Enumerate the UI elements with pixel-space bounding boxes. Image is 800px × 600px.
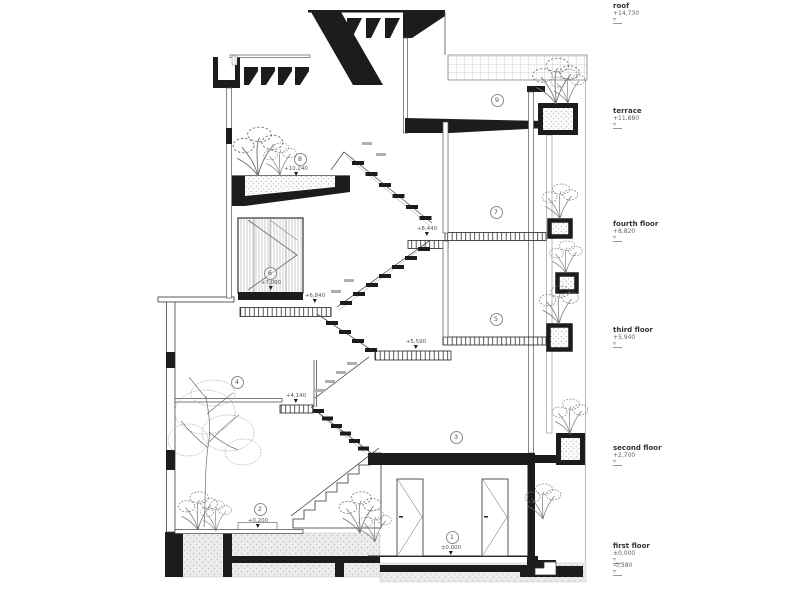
floor-label-third-floor: third floor +5,940 ▿ (613, 326, 693, 348)
landing-6840 (240, 308, 331, 317)
second-floor-slab (368, 453, 529, 465)
level-text: ±0.000 (441, 545, 461, 551)
bush (179, 492, 218, 530)
room-number-5: 5 (490, 313, 503, 326)
floor-elevation: ±0,000 (613, 550, 693, 557)
planter-4f (550, 221, 571, 237)
terrace-roof-slab (405, 118, 545, 133)
floor-elevation: -0,380 (613, 562, 693, 569)
level-annotation-5590: +5,590 (406, 339, 426, 349)
door (482, 479, 508, 556)
level-marker-icon (313, 299, 317, 303)
fourth-floor-slab (445, 233, 546, 241)
third-floor-slab (443, 337, 546, 345)
planter-terrace (541, 106, 576, 133)
room8-terrace-planter (232, 176, 350, 207)
level-text: +8,440 (417, 226, 437, 232)
floor-label-roof: roof +14,730 ▿ (613, 2, 693, 24)
floor-name: second floor (613, 444, 693, 452)
room-number-1: 1 (446, 531, 459, 544)
room-number-6: 6 (264, 267, 277, 280)
floor-elevation: +8,820 (613, 228, 693, 235)
planter-3f (549, 326, 571, 350)
floor-name: roof (613, 2, 693, 10)
room2-floor-line (175, 530, 303, 534)
level-text: +6,840 (305, 293, 325, 299)
level-text: +7,090 (261, 280, 281, 286)
floor-name: terrace (613, 107, 693, 115)
staircase (291, 142, 432, 528)
level-marker-icon: ▿ (613, 235, 622, 242)
room-number-2: 2 (254, 503, 267, 516)
floor-label-basement-datum: -0,380 ▿ (613, 562, 693, 576)
green-roof-tray (448, 55, 587, 80)
level-text: +4,140 (286, 393, 306, 399)
level-marker-icon (294, 172, 298, 176)
stair-core-wall (443, 122, 448, 337)
level-marker-icon (294, 399, 298, 403)
floor-name: first floor (613, 542, 693, 550)
level-marker-icon: ▿ (613, 459, 622, 466)
floor-name: third floor (613, 326, 693, 334)
floor-name: fourth floor (613, 220, 693, 228)
level-annotation-8440: +8,440 (417, 226, 437, 236)
landing-5590 (375, 351, 451, 360)
stair-treads (313, 161, 432, 451)
floor-elevation: +5,940 (613, 334, 693, 341)
floor-label-first-floor: first floor ±0,000 ▿ (613, 542, 693, 564)
room-number-8: 8 (294, 153, 307, 166)
level-text: +5,590 (406, 339, 426, 345)
level-annotation-10240: +10,240 (284, 166, 308, 176)
level-text: +0,200 (248, 518, 268, 524)
level-marker-icon (449, 551, 453, 555)
room-number-9: 9 (491, 94, 504, 107)
ground-floor-stair-outline (293, 453, 381, 528)
floor-label-fourth-floor: fourth floor +8,820 ▿ (613, 220, 693, 242)
door-handle (399, 516, 403, 518)
section-drawing-canvas: +10,240 +8,440 +7,090 +6,840 +5,590 +4,1… (0, 0, 800, 600)
level-marker-icon: ▿ (613, 569, 622, 576)
floor-elevation: +14,730 (613, 10, 693, 17)
level-marker-icon: ▿ (613, 341, 622, 348)
planter-3f-upper (558, 275, 577, 292)
level-annotation-0200: +0,200 (248, 518, 268, 528)
room-number-7: 7 (490, 206, 503, 219)
level-marker-icon: ▿ (613, 122, 622, 129)
level-marker-icon (425, 232, 429, 236)
floor-label-terrace: terrace +11,880 ▿ (613, 107, 693, 129)
level-marker-icon (414, 345, 418, 349)
planter-2f (559, 436, 583, 463)
level-marker-icon: ▿ (613, 17, 622, 24)
floor-elevation: +11,880 (613, 115, 693, 122)
level-marker-icon (269, 286, 273, 290)
room4-floor-line (175, 399, 282, 403)
level-annotation-4140: +4,140 (286, 393, 306, 403)
room-number-4: 4 (231, 376, 244, 389)
level-annotation-7090: +7,090 (261, 280, 281, 290)
left-facade-mullion (227, 88, 232, 298)
landing-4140 (280, 405, 313, 413)
level-marker-icon (256, 524, 260, 528)
floor-elevation: +2,700 (613, 452, 693, 459)
level-annotation-0000: ±0.000 (441, 545, 461, 555)
building-section-linework (0, 0, 800, 600)
level-text: +10,240 (284, 166, 308, 172)
door (397, 479, 423, 556)
floor-label-second-floor: second floor +2,700 ▿ (613, 444, 693, 466)
level-annotation-6840: +6,840 (305, 293, 325, 303)
door-handle (484, 516, 488, 518)
room-number-3: 3 (450, 431, 463, 444)
